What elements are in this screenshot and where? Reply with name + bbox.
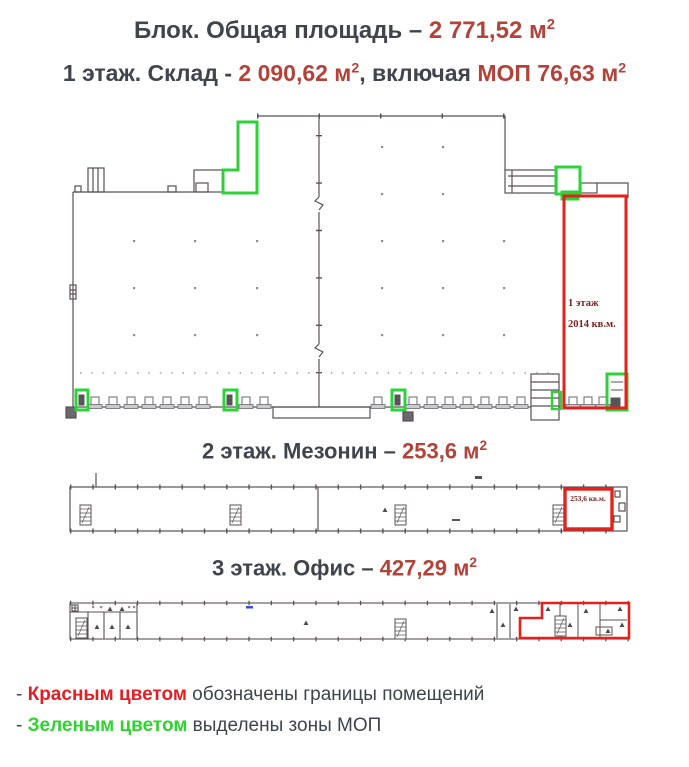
floor3-office-furniture bbox=[546, 607, 625, 637]
legend-green-line: - Зеленым цветом выделены зоны МОП bbox=[16, 715, 381, 737]
legend-red-text: обозначены границы помещений bbox=[187, 684, 485, 705]
floor1-walls bbox=[66, 116, 628, 421]
slide-page: Блок. Общая площадь – 2 771,52 м2 1 этаж… bbox=[0, 0, 689, 767]
mop-zone-top-right bbox=[556, 167, 580, 194]
floor1-heading: 1 этаж. Склад - 2 090,62 м2, включая МОП… bbox=[0, 60, 689, 87]
floor2-walls bbox=[70, 473, 627, 531]
heading-text: 3 этаж. Офис – bbox=[212, 555, 380, 580]
heading-text: Блок. Общая площадь – bbox=[134, 17, 429, 44]
heading-sup: 2 bbox=[479, 438, 487, 453]
floor1-plan: 1 этаж 2014 кв.м. bbox=[0, 110, 689, 427]
floor3-details bbox=[76, 606, 519, 639]
floor2-stairs bbox=[80, 505, 564, 525]
legend-dash: - bbox=[16, 715, 28, 736]
floor3-plan bbox=[0, 597, 689, 652]
heading-sup: 2 bbox=[618, 60, 626, 76]
floor3-heading: 3 этаж. Офис – 427,29 м2 bbox=[0, 555, 689, 581]
floor3-walls bbox=[70, 603, 629, 639]
heading-value: МОП 76,63 м bbox=[477, 60, 618, 86]
heading-text: 2 этаж. Мезонин – bbox=[202, 438, 402, 463]
legend-green-label: Зеленым цветом bbox=[28, 715, 188, 736]
floor2-plan: 253,6 кв.м. bbox=[0, 470, 689, 542]
heading-value: 427,29 м bbox=[380, 555, 470, 580]
floor3-office-partitions bbox=[560, 604, 627, 637]
heading-sup: 2 bbox=[469, 555, 477, 570]
legend-red-label: Красным цветом bbox=[28, 684, 187, 705]
legend-dash: - bbox=[16, 684, 28, 705]
blue-mark bbox=[246, 606, 253, 609]
block-total-area-heading: Блок. Общая площадь – 2 771,52 м2 bbox=[0, 17, 689, 45]
floor1-room-label-line1: 1 этаж bbox=[568, 298, 599, 309]
floor1-mop-zones bbox=[76, 122, 627, 410]
heading-sup: 2 bbox=[547, 17, 555, 33]
legend-red-line: - Красным цветом обозначены границы поме… bbox=[16, 684, 484, 706]
heading-text: , включая bbox=[359, 60, 477, 86]
floor2-heading: 2 этаж. Мезонин – 253,6 м2 bbox=[0, 438, 689, 464]
heading-value: 2 771,52 м bbox=[429, 17, 547, 44]
floor1-room-label-line2: 2014 кв.м. bbox=[568, 319, 616, 330]
heading-value: 2 090,62 м bbox=[238, 60, 351, 86]
heading-text: 1 этаж. Склад - bbox=[63, 60, 239, 86]
legend-green-text: выделены зоны МОП bbox=[187, 715, 381, 736]
heading-value: 253,6 м bbox=[402, 438, 479, 463]
floor2-room-area-label: 253,6 кв.м. bbox=[570, 494, 606, 503]
mop-zone-top-left bbox=[223, 122, 257, 193]
